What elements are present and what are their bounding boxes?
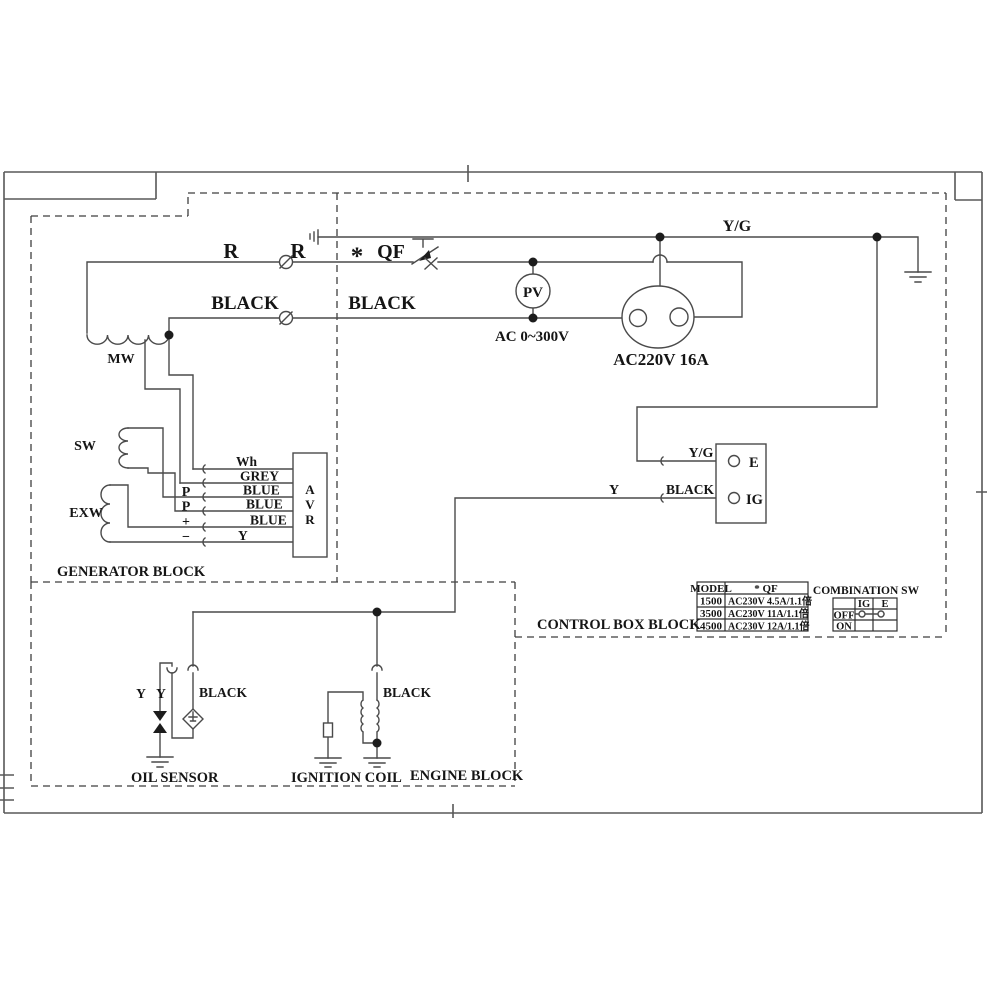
comb-row-off: OFF [834, 611, 855, 622]
p-label-1: P [182, 485, 191, 500]
exw-label: EXW [69, 506, 102, 521]
comb-header-e: E [881, 599, 888, 610]
black-ig-label: BLACK [666, 482, 715, 497]
model-4500-spec: AC230V 12A/1.1倍 [728, 620, 809, 633]
oil-ground-icon [147, 757, 173, 767]
yg-wire [318, 237, 918, 272]
yg-label-top: Y/G [723, 218, 752, 235]
blue-label-2: BLUE [246, 497, 283, 512]
mw-winding [87, 335, 193, 483]
model-3500: 3500 [700, 608, 723, 620]
y-label-1: Y [136, 686, 146, 701]
model-table-header-2: * QF [754, 583, 778, 595]
black-oil-label: BLACK [199, 685, 248, 700]
ac-socket [622, 286, 694, 348]
wire-connector-icon [203, 465, 205, 546]
socket-label: AC220V 16A [613, 350, 709, 369]
yg-e-label: Y/G [689, 446, 714, 461]
oil-sensor-label: OIL SENSOR [131, 770, 219, 786]
generator-block-label: GENERATOR BLOCK [57, 564, 206, 580]
spark-plug-icon [324, 723, 333, 737]
socket-pin-right [670, 308, 688, 326]
oil-diode-icon [153, 711, 167, 721]
coil-secondary [328, 692, 377, 758]
model-table: MODEL * QF 1500 AC230V 4.5A/1.1倍 3500 AC… [690, 582, 812, 633]
blue-label-3: BLUE [250, 513, 287, 528]
ig-terminal-circle [729, 493, 740, 504]
coil-primary [377, 700, 379, 758]
model-3500-spec: AC230V 11A/1.1倍 [728, 607, 809, 620]
e-terminal-circle [729, 456, 740, 467]
comb-row-on: ON [836, 622, 852, 633]
model-table-header-1: MODEL [690, 583, 732, 595]
qf-label: QF [377, 241, 405, 263]
sheet-frame [0, 165, 987, 818]
combination-sw-table: COMBINATION SW IG E OFF ON [813, 585, 920, 633]
qf-asterisk: * [351, 243, 364, 270]
ac-range-label: AC 0~300V [495, 329, 569, 345]
oil-diode-icon-2 [153, 723, 167, 733]
wh-label: Wh [236, 454, 258, 469]
sw-winding [119, 428, 128, 468]
control-box-block-label: CONTROL BOX BLOCK [537, 617, 701, 633]
wiring-diagram-page: MODEL * QF 1500 AC230V 4.5A/1.1倍 3500 AC… [0, 0, 987, 987]
engine-block-label: ENGINE BLOCK [410, 768, 524, 784]
black-label-gen: BLACK [211, 293, 279, 314]
block-boundaries [31, 193, 946, 786]
black-ignition-label: BLACK [383, 685, 432, 700]
y-label-2: Y [156, 686, 166, 701]
minus-label: − [182, 530, 190, 545]
e-terminal-wire [637, 237, 877, 461]
yg-start-ground-icon [310, 230, 318, 244]
qf-breaker-icon [412, 239, 438, 269]
terminal-connector-icons [661, 457, 663, 502]
grey-label: GREY [240, 469, 279, 484]
pv-label: PV [523, 285, 543, 301]
coil-ground-icon [364, 758, 390, 767]
r-label-1: R [223, 239, 239, 263]
plug-ground-icon [315, 758, 341, 767]
sw-label: SW [74, 439, 96, 454]
model-4500: 4500 [700, 621, 723, 633]
avr-letter-v: V [305, 497, 315, 512]
black-label-ctrl: BLACK [348, 293, 416, 314]
y-mid-label: Y [609, 483, 619, 498]
comb-header-ig: IG [858, 599, 870, 610]
plus-label: + [182, 515, 190, 530]
bullet-connector-icons [280, 256, 293, 325]
blue-label-1: BLUE [243, 483, 280, 498]
socket-pin-left [630, 310, 647, 327]
mw-label: MW [107, 352, 134, 367]
right-ground-icon [905, 272, 931, 282]
model-1500: 1500 [700, 596, 723, 608]
ignition-coil-label: IGNITION COIL [291, 770, 402, 786]
oil-sensor [153, 663, 203, 757]
avr-letter-r: R [305, 512, 315, 527]
e-terminal-label: E [749, 455, 759, 471]
mw-to-wh [169, 335, 193, 469]
p-label-2: P [182, 500, 191, 515]
r-label-2: R [290, 239, 306, 263]
avr-letter-a: A [305, 482, 315, 497]
y-avr-label: Y [238, 528, 248, 543]
combination-sw-title: COMBINATION SW [813, 585, 920, 597]
generator-wiring-diagram: MODEL * QF 1500 AC230V 4.5A/1.1倍 3500 AC… [0, 0, 987, 987]
ig-terminal-label: IG [746, 492, 763, 508]
model-1500-spec: AC230V 4.5A/1.1倍 [728, 595, 812, 608]
